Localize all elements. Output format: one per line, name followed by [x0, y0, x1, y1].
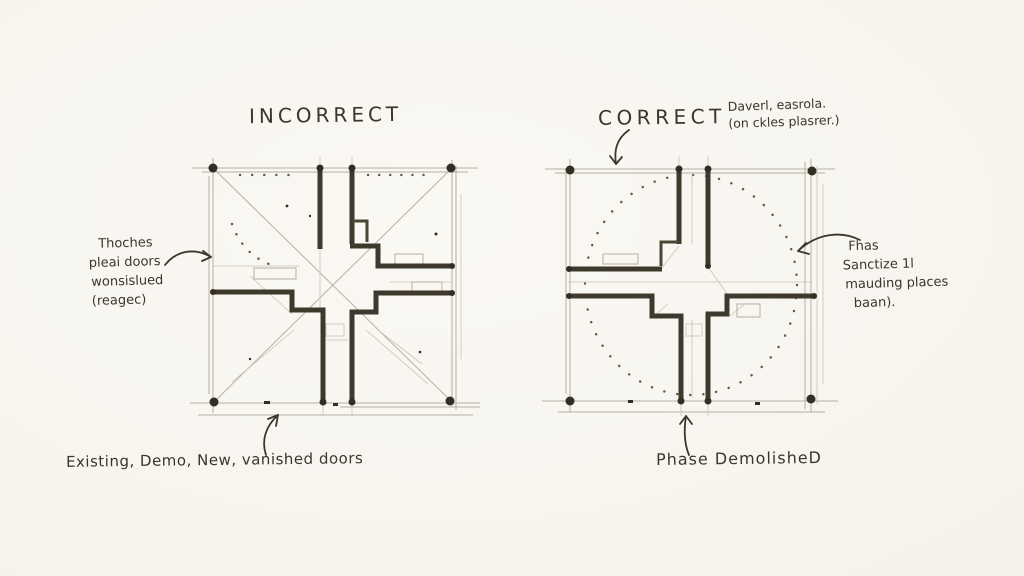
note-line: (reagec) — [92, 290, 165, 311]
right-note-arrow — [792, 229, 864, 259]
plan-border — [542, 159, 838, 412]
note-left: Thoches pleai doors wonsislued (reagec) — [88, 233, 164, 311]
note-line: (on ckles plasrer.) — [728, 111, 840, 132]
plan-construction-lines — [213, 156, 452, 416]
right-caption-arrow — [674, 409, 702, 457]
plan-border — [190, 158, 480, 415]
caption-left: Existing, Demo, New, vanished doors — [66, 449, 363, 471]
note-top-right: Daverl, easrola. (on ckles plasrer.) — [727, 94, 839, 132]
plan-construction-lines — [568, 156, 812, 416]
column-markers — [566, 166, 818, 406]
note-line: mauding places — [845, 273, 949, 295]
left-note-arrow — [162, 243, 218, 273]
sketch-page: INCORRECT CORRECT Daverl, easrola. (on c… — [0, 0, 1024, 576]
left-caption-arrow — [254, 408, 290, 458]
note-line: Thoches — [98, 233, 163, 254]
floor-plan-incorrect — [190, 154, 480, 419]
note-line: baan). — [854, 292, 950, 314]
title-incorrect: INCORRECT — [249, 102, 403, 128]
note-line: pleai doors — [88, 252, 163, 273]
note-line: wonsislued — [91, 271, 164, 292]
plan-walls — [568, 168, 815, 401]
floor-plan-correct — [540, 154, 840, 419]
correct-label-arrow — [602, 127, 638, 169]
dotted-circle — [585, 175, 797, 395]
